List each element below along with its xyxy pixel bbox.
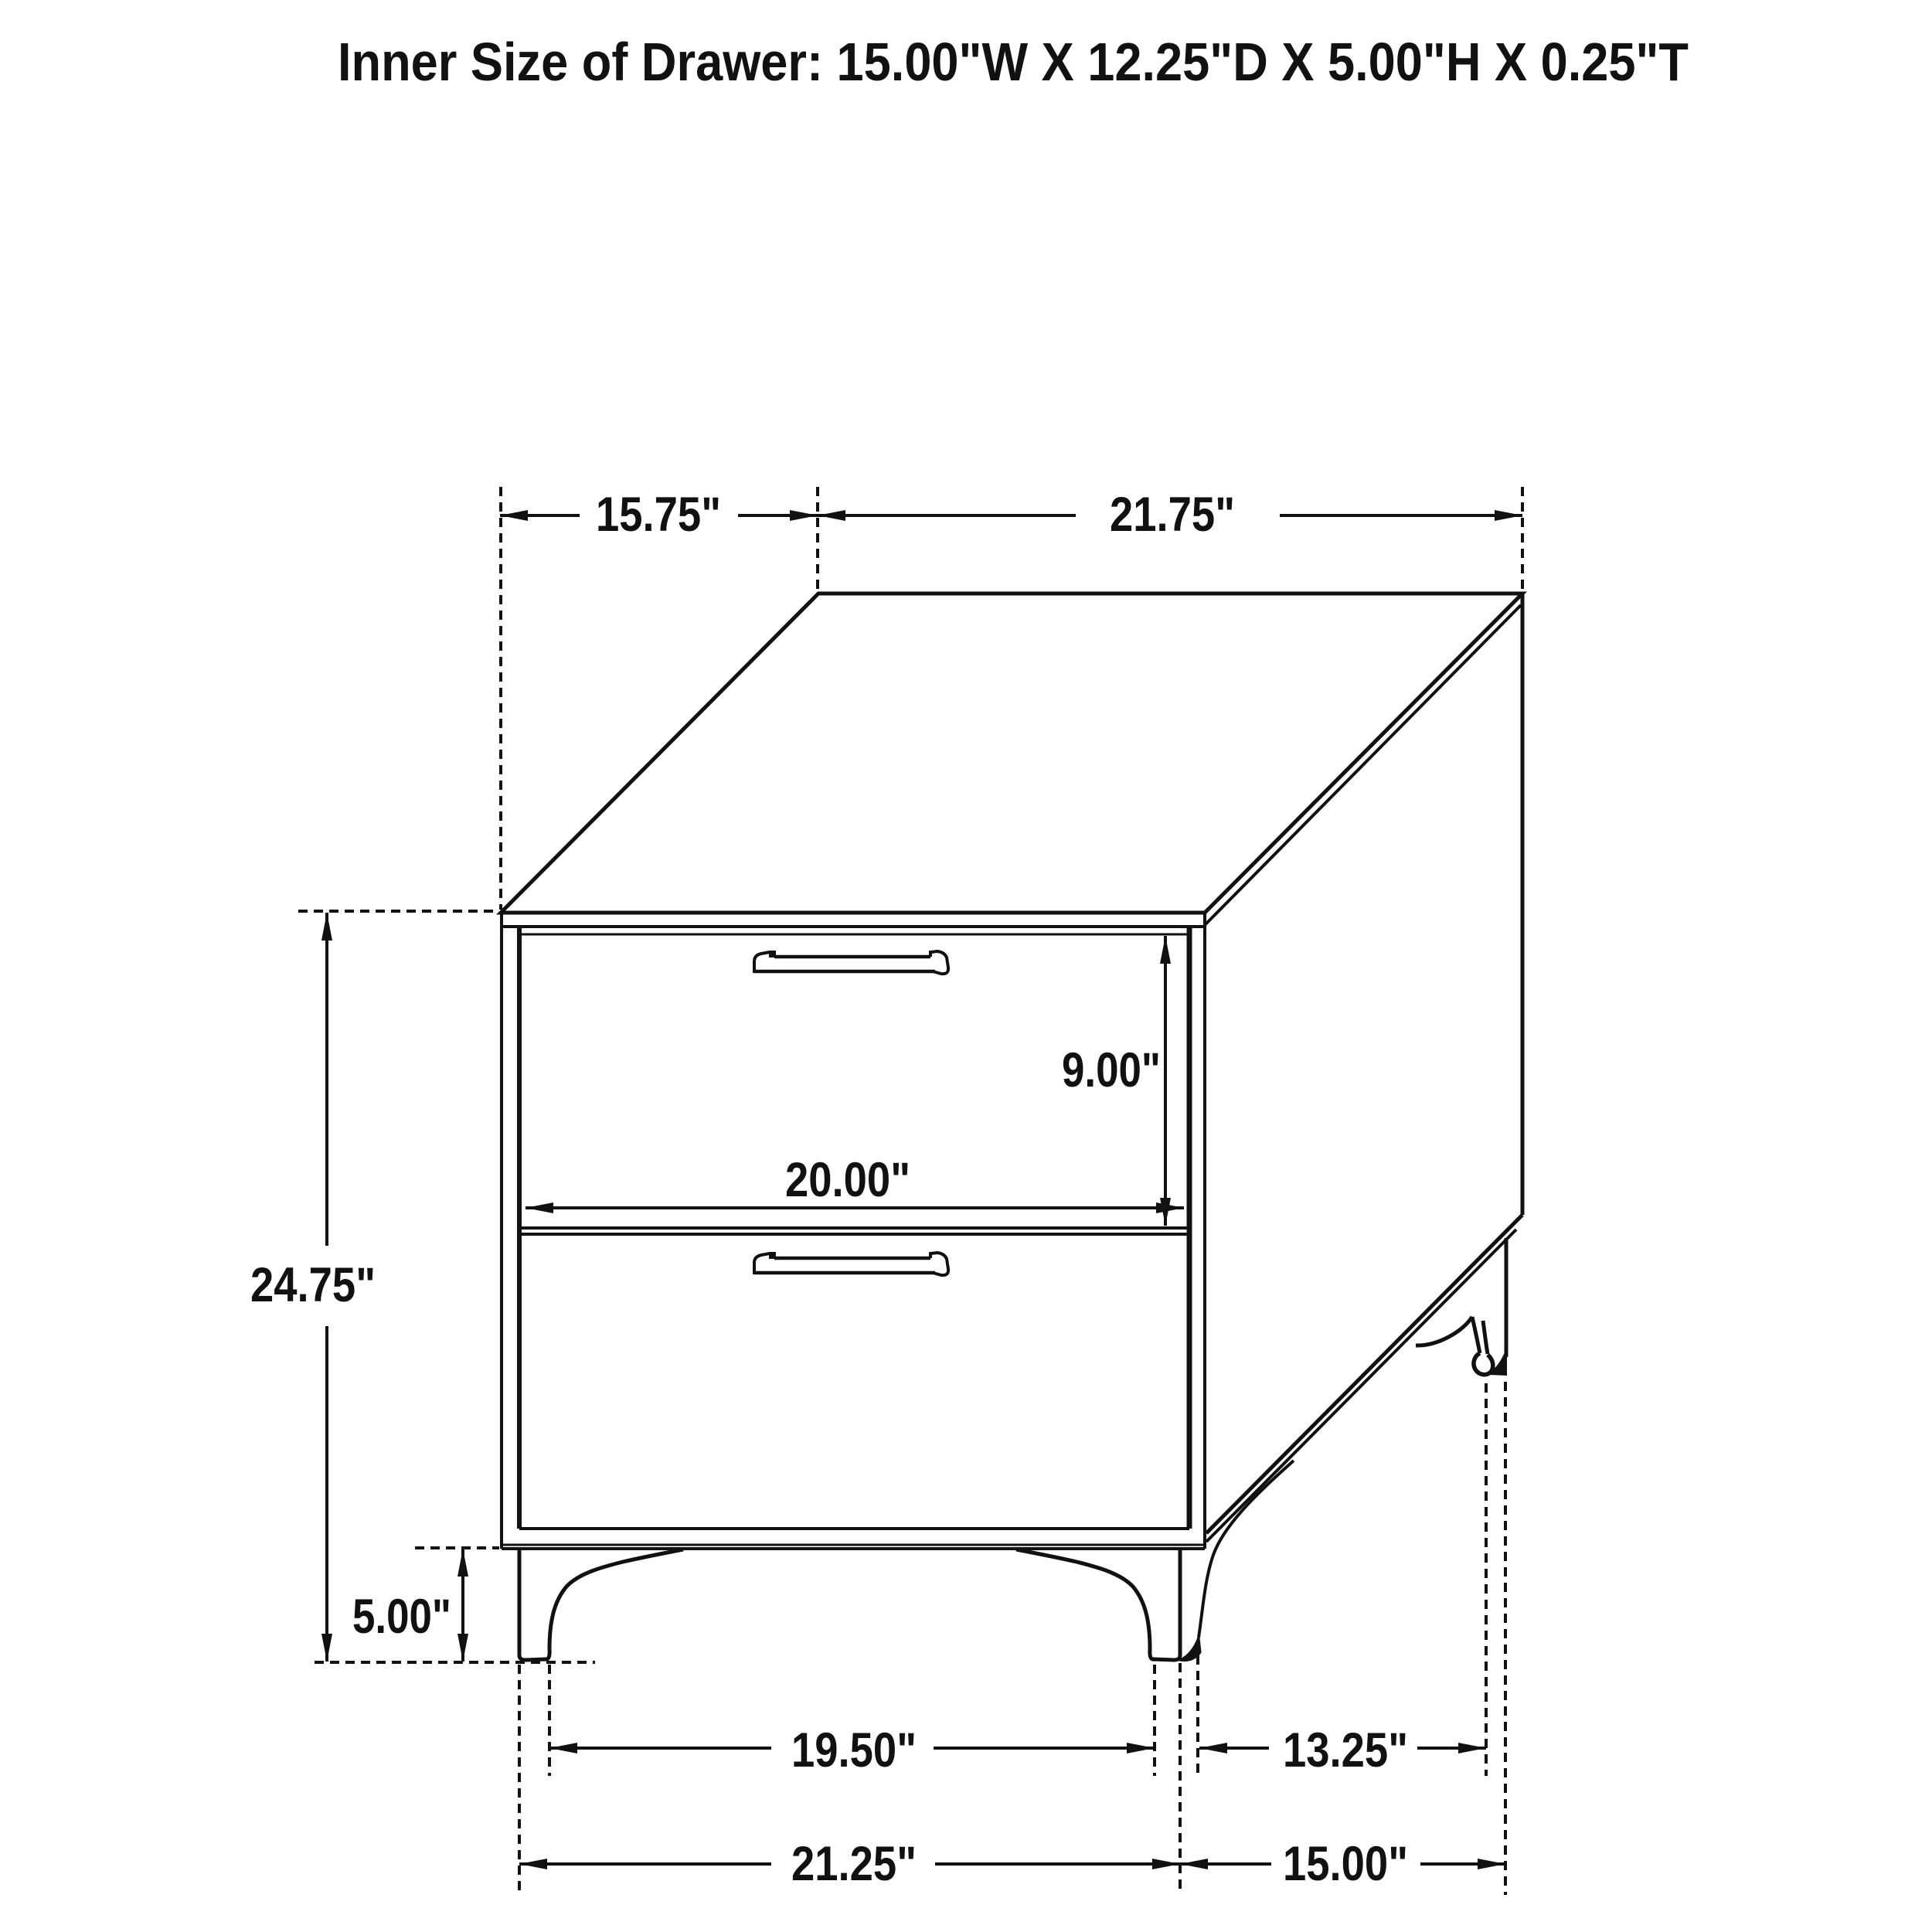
svg-text:19.50": 19.50" <box>791 1723 917 1777</box>
svg-text:20.00": 20.00" <box>785 1153 910 1207</box>
svg-text:21.25": 21.25" <box>791 1837 917 1891</box>
svg-text:9.00": 9.00" <box>1062 1043 1161 1097</box>
svg-text:15.75": 15.75" <box>596 488 721 542</box>
svg-text:21.75": 21.75" <box>1110 488 1235 542</box>
svg-text:24.75": 24.75" <box>250 1258 376 1312</box>
svg-text:15.00": 15.00" <box>1283 1837 1408 1891</box>
svg-text:13.25": 13.25" <box>1283 1723 1408 1777</box>
svg-text:5.00": 5.00" <box>352 1590 451 1644</box>
svg-text:Inner Size of Drawer: 15.00"W: Inner Size of Drawer: 15.00"W X 12.25"D … <box>338 32 1689 92</box>
